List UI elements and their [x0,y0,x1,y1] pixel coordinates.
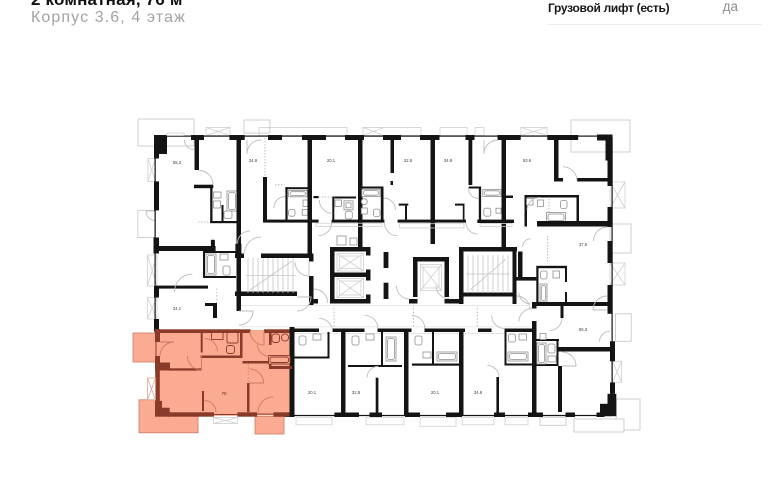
svg-text:20.1: 20.1 [431,390,440,395]
svg-text:70: 70 [221,391,227,396]
svg-text:55.3: 55.3 [173,160,182,165]
svg-text:20.1: 20.1 [327,158,336,163]
svg-text:55.3: 55.3 [579,327,588,332]
svg-text:53.6: 53.6 [523,158,532,163]
svg-text:37.5: 37.5 [579,242,588,247]
svg-text:20.1: 20.1 [308,390,317,395]
svg-text:34.1: 34.1 [173,306,182,311]
svg-text:34.9: 34.9 [249,158,258,163]
svg-text:34.9: 34.9 [474,390,483,395]
svg-text:34.9: 34.9 [444,158,453,163]
svg-text:32.8: 32.8 [352,390,361,395]
svg-text:32.8: 32.8 [404,158,413,163]
